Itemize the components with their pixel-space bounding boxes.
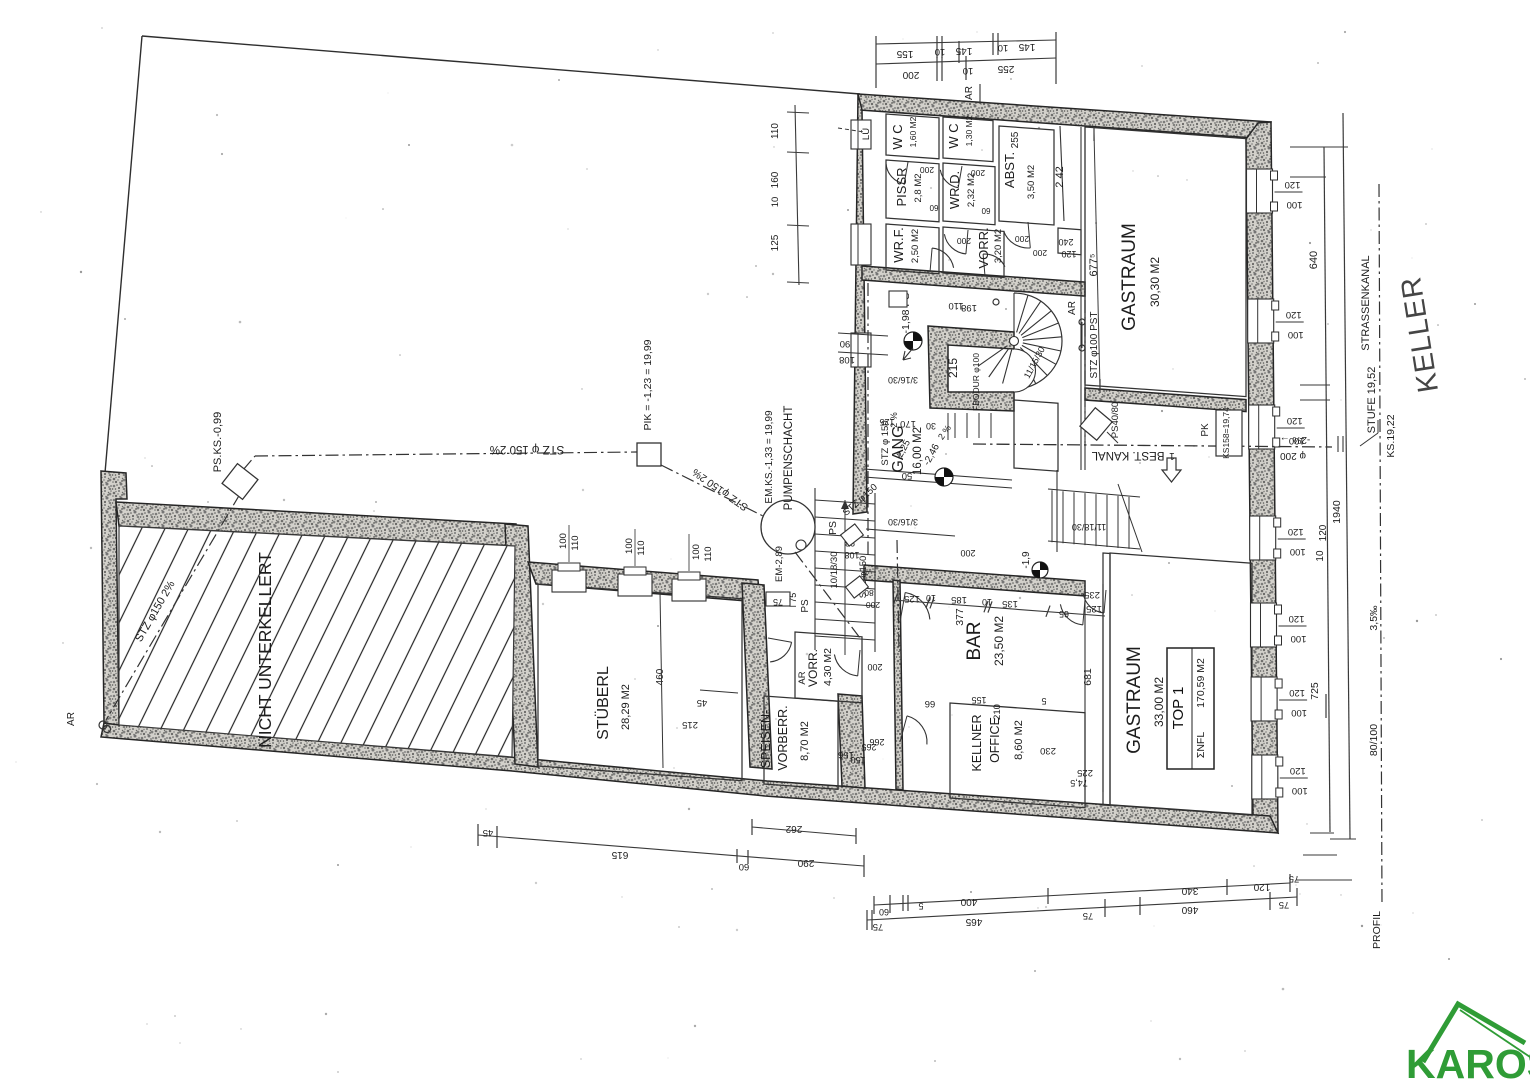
- svg-text:PUMPENSCHACHT: PUMPENSCHACHT: [783, 406, 795, 511]
- svg-text:KELLER: KELLER: [1395, 274, 1445, 395]
- svg-text:1,60 M2: 1,60 M2: [908, 116, 918, 147]
- svg-text:2,50 M2: 2,50 M2: [910, 229, 921, 263]
- svg-text:100: 100: [558, 533, 569, 549]
- svg-text:460: 460: [655, 668, 666, 685]
- svg-text:AR: AR: [797, 671, 808, 684]
- svg-text:120: 120: [1253, 881, 1270, 892]
- svg-text:155: 155: [896, 48, 913, 59]
- svg-text:110: 110: [770, 123, 781, 139]
- svg-text:108: 108: [839, 354, 855, 365]
- svg-text:W C: W C: [890, 124, 905, 149]
- svg-text:60: 60: [879, 907, 889, 917]
- svg-text:1940: 1940: [1331, 500, 1343, 524]
- svg-text:45: 45: [697, 697, 708, 708]
- svg-text:75: 75: [1083, 910, 1094, 921]
- svg-text:230: 230: [1040, 745, 1056, 756]
- svg-text:100: 100: [1292, 785, 1308, 796]
- svg-text:198: 198: [961, 302, 977, 313]
- svg-text:120: 120: [1061, 249, 1076, 259]
- svg-text:80/100: 80/100: [1368, 724, 1380, 756]
- svg-text:8,60 M2: 8,60 M2: [1013, 720, 1025, 760]
- svg-text:170,59 M2: 170,59 M2: [1195, 658, 1207, 708]
- svg-text:255: 255: [997, 63, 1014, 74]
- svg-text:2,8 M2: 2,8 M2: [913, 173, 924, 202]
- svg-text:-1,9: -1,9: [1021, 551, 1032, 569]
- svg-text:200: 200: [1033, 248, 1047, 258]
- svg-text:VORR.: VORR.: [976, 227, 991, 268]
- svg-text:VORR.: VORR.: [806, 649, 820, 687]
- svg-text:1,30 M2: 1,30 M2: [964, 115, 974, 146]
- svg-text:ABST.: ABST.: [1002, 152, 1017, 188]
- svg-text:WR.D.: WR.D.: [947, 171, 962, 209]
- svg-text:PS: PS: [827, 521, 839, 535]
- svg-text:100: 100: [1291, 707, 1307, 718]
- svg-text:100: 100: [1290, 546, 1306, 557]
- svg-text:10: 10: [963, 65, 974, 76]
- svg-text:125: 125: [770, 234, 781, 251]
- svg-text:GASTRAUM: GASTRAUM: [1119, 223, 1140, 331]
- svg-text:240: 240: [1058, 237, 1073, 247]
- svg-text:290: 290: [797, 857, 814, 868]
- svg-text:3,50 M2: 3,50 M2: [1026, 165, 1037, 199]
- svg-text:STZ φ100 PST: STZ φ100 PST: [1089, 311, 1100, 378]
- svg-text:PROFIL: PROFIL: [1371, 911, 1383, 949]
- svg-text:215: 215: [946, 358, 960, 378]
- svg-text:235: 235: [1084, 589, 1100, 600]
- svg-text:60: 60: [739, 861, 750, 872]
- svg-text:11/18/30: 11/18/30: [1072, 522, 1106, 532]
- svg-text:145: 145: [1018, 41, 1035, 52]
- svg-text:75: 75: [1279, 899, 1290, 910]
- svg-text:3/16/30: 3/16/30: [888, 375, 918, 385]
- svg-text:75: 75: [773, 597, 783, 607]
- svg-text:PK: PK: [1200, 423, 1211, 437]
- svg-text:110: 110: [570, 535, 581, 550]
- svg-text:100: 100: [691, 544, 702, 560]
- svg-text:215: 215: [682, 719, 698, 730]
- svg-text:GASTRAUM: GASTRAUM: [1124, 646, 1145, 754]
- svg-text:10: 10: [1315, 550, 1326, 562]
- svg-text:120: 120: [1285, 179, 1301, 190]
- svg-text:200: 200: [920, 165, 934, 175]
- svg-text:10: 10: [935, 46, 946, 57]
- svg-text:65: 65: [1059, 609, 1069, 619]
- svg-text:WR.F.: WR.F.: [891, 227, 906, 262]
- svg-text:200: 200: [1015, 234, 1029, 244]
- svg-text:60: 60: [981, 206, 990, 215]
- svg-text:TOP 1: TOP 1: [1170, 687, 1187, 730]
- svg-text:125: 125: [879, 417, 894, 427]
- svg-text:ΣNFL: ΣNFL: [1195, 732, 1207, 758]
- svg-text:262: 262: [785, 823, 802, 834]
- svg-text:NICHT UNTERKELLERT: NICHT UNTERKELLERT: [255, 552, 275, 748]
- svg-text:45: 45: [483, 827, 494, 838]
- svg-text:100: 100: [624, 538, 635, 554]
- svg-text:200: 200: [960, 548, 975, 558]
- svg-text:30: 30: [926, 421, 936, 431]
- svg-text:3,20 M2: 3,20 M2: [993, 229, 1004, 263]
- svg-text:100: 100: [1287, 199, 1303, 210]
- svg-text:KS.19,22: KS.19,22: [1385, 414, 1397, 457]
- svg-text:681: 681: [1082, 668, 1094, 686]
- svg-text:10/18/30: 10/18/30: [829, 552, 840, 589]
- svg-text:W C: W C: [946, 123, 961, 148]
- svg-text:5: 5: [1041, 696, 1046, 706]
- svg-text:AR: AR: [1067, 301, 1078, 315]
- svg-text:10: 10: [926, 593, 936, 603]
- svg-text:-2,46: -2,46: [922, 442, 943, 468]
- svg-text:3/16/30: 3/16/30: [888, 517, 918, 527]
- svg-text:150: 150: [850, 755, 865, 765]
- svg-text:2 %: 2 %: [936, 423, 953, 441]
- svg-text:120: 120: [1318, 524, 1329, 541]
- svg-text:460: 460: [1181, 904, 1198, 915]
- svg-text:STRASSENKANAL: STRASSENKANAL: [1360, 255, 1372, 350]
- svg-text:KELLNER: KELLNER: [970, 715, 984, 772]
- svg-text:16,00 M2: 16,00 M2: [912, 427, 924, 475]
- svg-text:5: 5: [918, 901, 923, 911]
- svg-text:120: 120: [1289, 613, 1305, 624]
- svg-text:BAR: BAR: [964, 621, 985, 660]
- svg-text:AR: AR: [66, 712, 77, 726]
- svg-text:677⁵: 677⁵: [1088, 254, 1100, 277]
- svg-text:120: 120: [1288, 526, 1304, 537]
- svg-text:8,70 M2: 8,70 M2: [799, 721, 811, 761]
- svg-text:615: 615: [611, 849, 628, 860]
- svg-text:160: 160: [770, 171, 781, 188]
- svg-text:30,30 M2: 30,30 M2: [1148, 257, 1162, 307]
- svg-text:10: 10: [982, 597, 992, 607]
- svg-text:200: 200: [866, 600, 880, 610]
- svg-text:10: 10: [998, 42, 1009, 53]
- svg-text:400: 400: [960, 896, 977, 907]
- svg-text:74,5: 74,5: [1070, 778, 1088, 788]
- svg-text:PISSR: PISSR: [894, 167, 909, 206]
- svg-text:125: 125: [1086, 603, 1102, 614]
- svg-text:120: 120: [1287, 415, 1303, 426]
- svg-text:155: 155: [971, 695, 986, 705]
- svg-text:120: 120: [1290, 765, 1306, 776]
- svg-text:33,00 M2: 33,00 M2: [1152, 677, 1166, 727]
- svg-text:28,29 M2: 28,29 M2: [620, 684, 632, 730]
- svg-text:LÜ: LÜ: [861, 128, 872, 140]
- svg-text:50: 50: [902, 470, 913, 481]
- svg-text:STÜBERL: STÜBERL: [594, 666, 612, 740]
- svg-text:PS.KS.-0,99: PS.KS.-0,99: [212, 412, 224, 473]
- svg-text:BEST. KANAL: BEST. KANAL: [1091, 449, 1164, 461]
- svg-text:185: 185: [951, 594, 967, 605]
- svg-text:340: 340: [1181, 885, 1198, 896]
- svg-text:135: 135: [1002, 598, 1018, 609]
- svg-text:170: 170: [900, 418, 916, 429]
- svg-text:-2% →: -2% →: [1280, 434, 1311, 445]
- svg-text:2 42: 2 42: [1054, 166, 1066, 187]
- svg-text:l 75: l 75: [788, 593, 798, 608]
- svg-text:200: 200: [902, 69, 919, 80]
- svg-text:PS: PS: [800, 599, 811, 613]
- svg-text:110: 110: [636, 540, 647, 555]
- svg-text:3,5‰: 3,5‰: [1368, 605, 1380, 631]
- svg-text:725: 725: [1309, 682, 1321, 700]
- svg-text:377: 377: [954, 608, 966, 626]
- svg-text:200: 200: [971, 168, 985, 178]
- svg-text:465: 465: [965, 916, 982, 927]
- svg-text:200: 200: [957, 236, 971, 246]
- svg-text:266: 266: [869, 737, 884, 747]
- svg-text:225: 225: [1077, 767, 1093, 778]
- svg-text:SPEISEN-: SPEISEN-: [759, 710, 773, 768]
- svg-text:4,30 M2: 4,30 M2: [822, 648, 834, 686]
- svg-text:640: 640: [1308, 251, 1320, 269]
- svg-text:1: 1: [1169, 450, 1175, 461]
- svg-text:60: 60: [929, 203, 938, 212]
- svg-text:EM-2,89: EM-2,89: [774, 546, 785, 582]
- svg-text:OFFICE: OFFICE: [988, 717, 1002, 763]
- svg-text:75: 75: [873, 921, 884, 932]
- svg-text:200: 200: [867, 662, 882, 672]
- svg-text:KS158=19,74: KS158=19,74: [1221, 407, 1231, 459]
- svg-text:KAROS: KAROS: [1406, 1041, 1530, 1080]
- svg-text:100: 100: [1291, 633, 1307, 644]
- svg-text:10: 10: [770, 197, 781, 208]
- svg-text:66: 66: [925, 698, 936, 709]
- svg-text:125: 125: [904, 593, 920, 604]
- svg-text:STZ φ 150 2%: STZ φ 150 2%: [490, 443, 565, 455]
- svg-text:90: 90: [840, 338, 851, 349]
- svg-text:PIK = -1,23 = 19,99: PIK = -1,23 = 19,99: [642, 339, 654, 430]
- svg-text:120: 120: [1286, 309, 1302, 320]
- svg-text:PS40/80: PS40/80: [1110, 402, 1121, 438]
- svg-text:VORBERR.: VORBERR.: [776, 705, 790, 770]
- svg-text:STZ φ150 2%: STZ φ150 2%: [690, 466, 750, 513]
- svg-text:255: 255: [1010, 131, 1021, 148]
- svg-text:23,50 M2: 23,50 M2: [992, 616, 1006, 666]
- svg-text:120: 120: [1289, 687, 1305, 698]
- svg-text:φ 200: φ 200: [1280, 450, 1306, 461]
- svg-text:AR: AR: [964, 86, 975, 100]
- svg-text:100: 100: [1288, 329, 1304, 340]
- svg-text:STUFE 19,52: STUFE 19,52: [1366, 367, 1378, 434]
- svg-text:210: 210: [992, 704, 1003, 720]
- svg-text:EM.KS.-1,33 = 19,99: EM.KS.-1,33 = 19,99: [764, 410, 775, 504]
- svg-text:FBODUR φ100: FBODUR φ100: [971, 353, 981, 411]
- svg-text:145: 145: [955, 45, 972, 56]
- svg-text:110: 110: [703, 546, 714, 561]
